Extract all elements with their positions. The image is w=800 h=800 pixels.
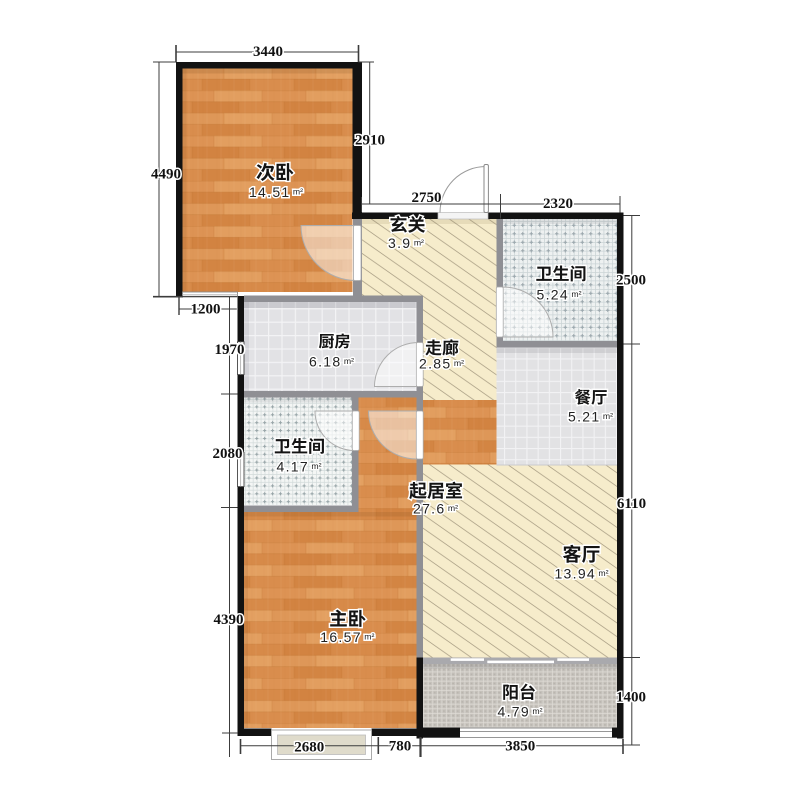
svg-text:2750: 2750: [412, 190, 442, 206]
svg-text:4490: 4490: [151, 166, 181, 182]
svg-text:3850: 3850: [505, 739, 535, 755]
svg-text:6110: 6110: [617, 496, 646, 512]
svg-text:780: 780: [389, 739, 412, 755]
svg-text:2080: 2080: [213, 446, 243, 462]
svg-text:3440: 3440: [253, 44, 283, 60]
svg-text:1200: 1200: [191, 301, 221, 317]
svg-text:2680: 2680: [294, 739, 324, 755]
svg-text:2500: 2500: [616, 272, 646, 288]
svg-text:1400: 1400: [616, 689, 646, 705]
svg-text:2910: 2910: [355, 132, 385, 148]
svg-text:2320: 2320: [543, 196, 573, 212]
svg-text:1970: 1970: [215, 342, 245, 358]
svg-text:4390: 4390: [214, 612, 244, 628]
